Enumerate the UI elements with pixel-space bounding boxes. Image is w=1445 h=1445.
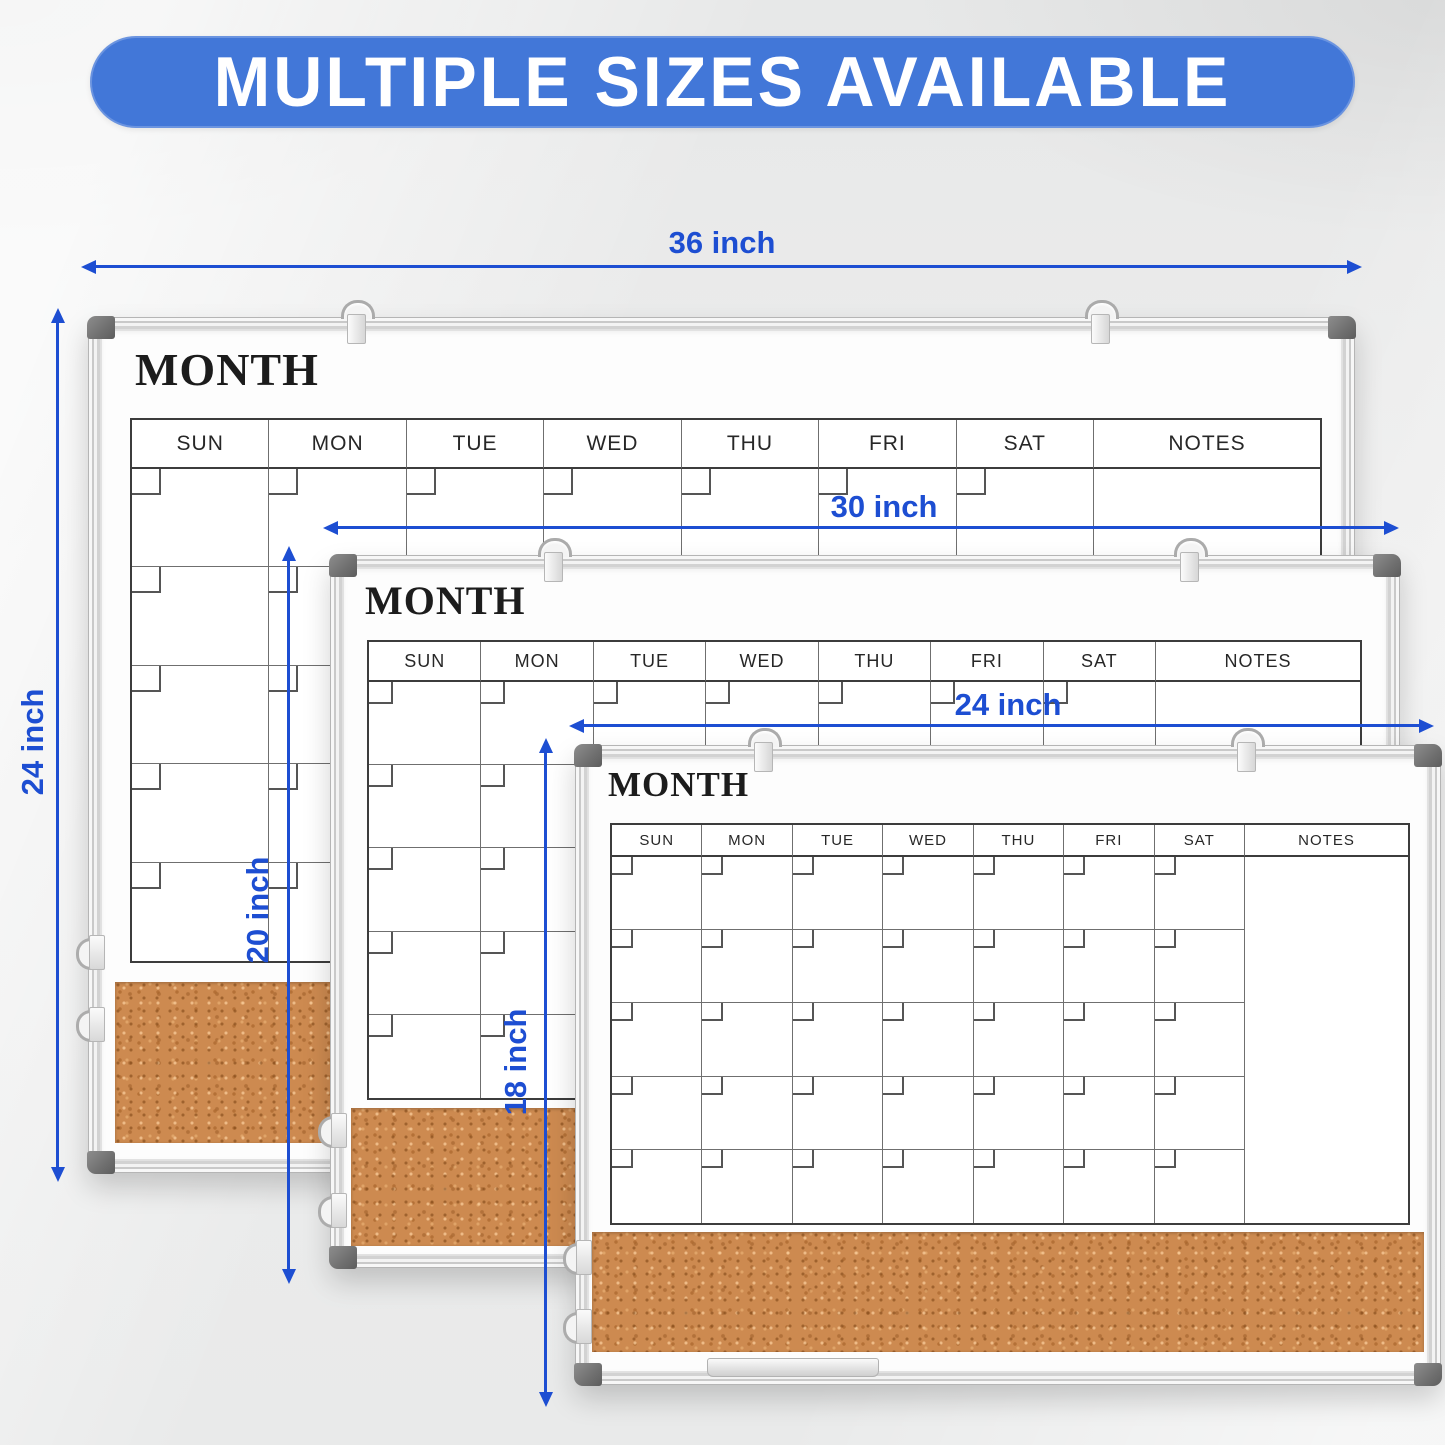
corner-cap xyxy=(1373,554,1401,577)
day-cell xyxy=(793,1150,883,1223)
corner-cap xyxy=(1414,1363,1442,1386)
date-box xyxy=(369,765,393,787)
date-box xyxy=(702,857,723,875)
date-box xyxy=(702,1150,723,1168)
whiteboard-small: MONTH SUN MON TUE WED THU FRI SAT NOTES xyxy=(575,745,1441,1385)
date-box xyxy=(269,469,298,495)
date-box xyxy=(883,1003,904,1021)
date-box xyxy=(793,1077,814,1095)
day-header-fri: FRI xyxy=(819,420,956,469)
day-cell xyxy=(883,1150,973,1223)
day-cell xyxy=(883,1003,973,1076)
date-box xyxy=(706,682,730,704)
day-cell xyxy=(883,1077,973,1150)
day-cell xyxy=(793,1003,883,1076)
day-header-thu: THU xyxy=(974,825,1064,857)
day-cell xyxy=(702,1077,792,1150)
date-box xyxy=(793,1150,814,1168)
width-label-36: 36 inch xyxy=(669,225,776,261)
date-box xyxy=(1155,1003,1176,1021)
date-box xyxy=(132,863,161,889)
corner-cap xyxy=(574,744,602,767)
date-box xyxy=(1155,930,1176,948)
day-cell xyxy=(1155,930,1245,1003)
day-cell xyxy=(974,1150,1064,1223)
corner-cap xyxy=(1414,744,1442,767)
notes-header: NOTES xyxy=(1094,420,1320,469)
side-clip-icon xyxy=(318,1195,354,1225)
date-box xyxy=(481,848,505,870)
date-box xyxy=(1064,857,1085,875)
day-cell xyxy=(702,930,792,1003)
day-cell xyxy=(1155,1077,1245,1150)
day-cell xyxy=(883,930,973,1003)
date-box xyxy=(702,1003,723,1021)
date-box xyxy=(369,682,393,704)
day-header-wed: WED xyxy=(883,825,973,857)
day-header-thu: THU xyxy=(819,642,931,682)
day-cell xyxy=(1064,930,1154,1003)
month-title: MONTH xyxy=(135,347,319,393)
date-box xyxy=(1064,1150,1085,1168)
date-box xyxy=(974,1077,995,1095)
day-header-sun: SUN xyxy=(132,420,269,469)
date-box xyxy=(793,930,814,948)
date-box xyxy=(369,1015,393,1037)
day-cell xyxy=(793,1077,883,1150)
height-label-20: 20 inch xyxy=(240,857,276,964)
date-box xyxy=(544,469,573,495)
day-cell xyxy=(1064,1150,1154,1223)
day-cell xyxy=(612,857,702,930)
date-box xyxy=(1064,930,1085,948)
date-box xyxy=(793,1003,814,1021)
day-header-mon: MON xyxy=(702,825,792,857)
day-cell xyxy=(132,469,269,567)
height-label-18: 18 inch xyxy=(498,1009,534,1116)
date-box xyxy=(1064,1003,1085,1021)
day-cell xyxy=(612,1150,702,1223)
hanging-tab-icon xyxy=(746,728,780,772)
date-box xyxy=(1155,1150,1176,1168)
day-header-thu: THU xyxy=(682,420,819,469)
hanging-tab-icon xyxy=(536,538,570,582)
day-cell xyxy=(369,765,481,848)
day-header-sun: SUN xyxy=(369,642,481,682)
day-cell xyxy=(1064,857,1154,930)
hanging-tab-icon xyxy=(1172,538,1206,582)
day-cell xyxy=(132,567,269,665)
day-cell xyxy=(612,930,702,1003)
corner-cap xyxy=(329,554,357,577)
day-header-sat: SAT xyxy=(1155,825,1245,857)
day-cell xyxy=(612,1003,702,1076)
banner-text: MULTIPLE SIZES AVAILABLE xyxy=(214,47,1232,118)
day-header-wed: WED xyxy=(544,420,681,469)
day-cell xyxy=(974,857,1064,930)
hanging-tab-icon xyxy=(339,300,373,344)
day-header-sat: SAT xyxy=(957,420,1094,469)
date-box xyxy=(132,567,161,593)
month-title: MONTH xyxy=(365,581,526,621)
date-box xyxy=(793,857,814,875)
date-box xyxy=(883,857,904,875)
notes-header: NOTES xyxy=(1156,642,1360,682)
height-arrow-20 xyxy=(287,560,290,1270)
date-box xyxy=(132,764,161,790)
date-box xyxy=(957,469,986,495)
date-box xyxy=(612,1003,633,1021)
day-cell xyxy=(369,682,481,765)
date-box xyxy=(481,765,505,787)
date-box xyxy=(269,666,298,692)
date-box xyxy=(883,930,904,948)
corner-cap xyxy=(1328,316,1356,339)
date-box xyxy=(974,857,995,875)
day-header-sun: SUN xyxy=(612,825,702,857)
day-header-fri: FRI xyxy=(1064,825,1154,857)
date-box xyxy=(819,682,843,704)
side-clip-icon xyxy=(318,1115,354,1145)
notes-header: NOTES xyxy=(1245,825,1408,857)
hanging-tab-icon xyxy=(1083,300,1117,344)
corner-cap xyxy=(329,1246,357,1269)
date-box xyxy=(481,932,505,954)
day-header-tue: TUE xyxy=(793,825,883,857)
calendar-grid: SUN MON TUE WED THU FRI SAT NOTES xyxy=(610,823,1410,1225)
day-cell xyxy=(612,1077,702,1150)
width-label-30: 30 inch xyxy=(831,489,938,525)
day-cell xyxy=(407,469,544,567)
day-header-tue: TUE xyxy=(594,642,706,682)
date-box xyxy=(1155,1077,1176,1095)
day-header-mon: MON xyxy=(269,420,406,469)
date-box xyxy=(612,1077,633,1095)
date-box xyxy=(132,469,161,495)
day-cell xyxy=(702,1150,792,1223)
date-box xyxy=(883,1077,904,1095)
day-cell xyxy=(702,1003,792,1076)
day-cell xyxy=(974,1077,1064,1150)
side-clip-icon xyxy=(563,1242,599,1272)
day-cell xyxy=(1064,1077,1154,1150)
date-box xyxy=(594,682,618,704)
date-box xyxy=(612,857,633,875)
notes-cell xyxy=(1245,857,1408,1223)
date-box xyxy=(702,1077,723,1095)
date-box xyxy=(369,848,393,870)
day-cell xyxy=(132,764,269,862)
day-cell xyxy=(1064,1003,1154,1076)
day-cell xyxy=(369,1015,481,1098)
date-box xyxy=(612,1150,633,1168)
day-cell xyxy=(702,857,792,930)
day-header-fri: FRI xyxy=(931,642,1043,682)
day-cell xyxy=(1155,857,1245,930)
date-box xyxy=(481,682,505,704)
day-cell xyxy=(957,469,1094,567)
corner-cap xyxy=(87,316,115,339)
day-header-sat: SAT xyxy=(1044,642,1156,682)
day-cell xyxy=(974,930,1064,1003)
height-arrow-18 xyxy=(544,752,547,1393)
date-box xyxy=(682,469,711,495)
day-cell xyxy=(1155,1003,1245,1076)
marker-tray xyxy=(707,1358,879,1377)
month-title: MONTH xyxy=(608,767,749,802)
day-cell xyxy=(793,857,883,930)
day-cell xyxy=(682,469,819,567)
date-box xyxy=(974,1003,995,1021)
width-arrow-24 xyxy=(583,724,1420,727)
day-cell xyxy=(369,848,481,931)
date-box xyxy=(269,764,298,790)
hanging-tab-icon xyxy=(1229,728,1263,772)
day-cell xyxy=(793,930,883,1003)
date-box xyxy=(1064,1077,1085,1095)
corner-cap xyxy=(87,1151,115,1174)
date-box xyxy=(612,930,633,948)
date-box xyxy=(702,930,723,948)
day-cell xyxy=(1155,1150,1245,1223)
side-clip-icon xyxy=(76,1009,112,1039)
date-box xyxy=(369,932,393,954)
day-header-mon: MON xyxy=(481,642,593,682)
date-box xyxy=(974,1150,995,1168)
date-box xyxy=(883,1150,904,1168)
date-box xyxy=(931,682,955,704)
side-clip-icon xyxy=(76,937,112,967)
corner-cap xyxy=(574,1363,602,1386)
height-label-24: 24 inch xyxy=(15,689,51,796)
day-cell xyxy=(369,932,481,1015)
side-clip-icon xyxy=(563,1311,599,1341)
date-box xyxy=(407,469,436,495)
product-showcase: MULTIPLE SIZES AVAILABLE MONTH SUN MON T… xyxy=(0,0,1445,1445)
day-cell xyxy=(883,857,973,930)
day-header-wed: WED xyxy=(706,642,818,682)
date-box xyxy=(1155,857,1176,875)
width-arrow-30 xyxy=(337,526,1385,529)
width-arrow-36 xyxy=(95,265,1348,268)
day-cell xyxy=(132,666,269,764)
date-box xyxy=(269,567,298,593)
day-cell xyxy=(974,1003,1064,1076)
width-label-24: 24 inch xyxy=(955,687,1062,723)
date-box xyxy=(974,930,995,948)
day-header-tue: TUE xyxy=(407,420,544,469)
banner: MULTIPLE SIZES AVAILABLE xyxy=(90,36,1355,128)
cork-strip xyxy=(592,1232,1424,1352)
height-arrow-24 xyxy=(56,322,59,1168)
date-box xyxy=(132,666,161,692)
